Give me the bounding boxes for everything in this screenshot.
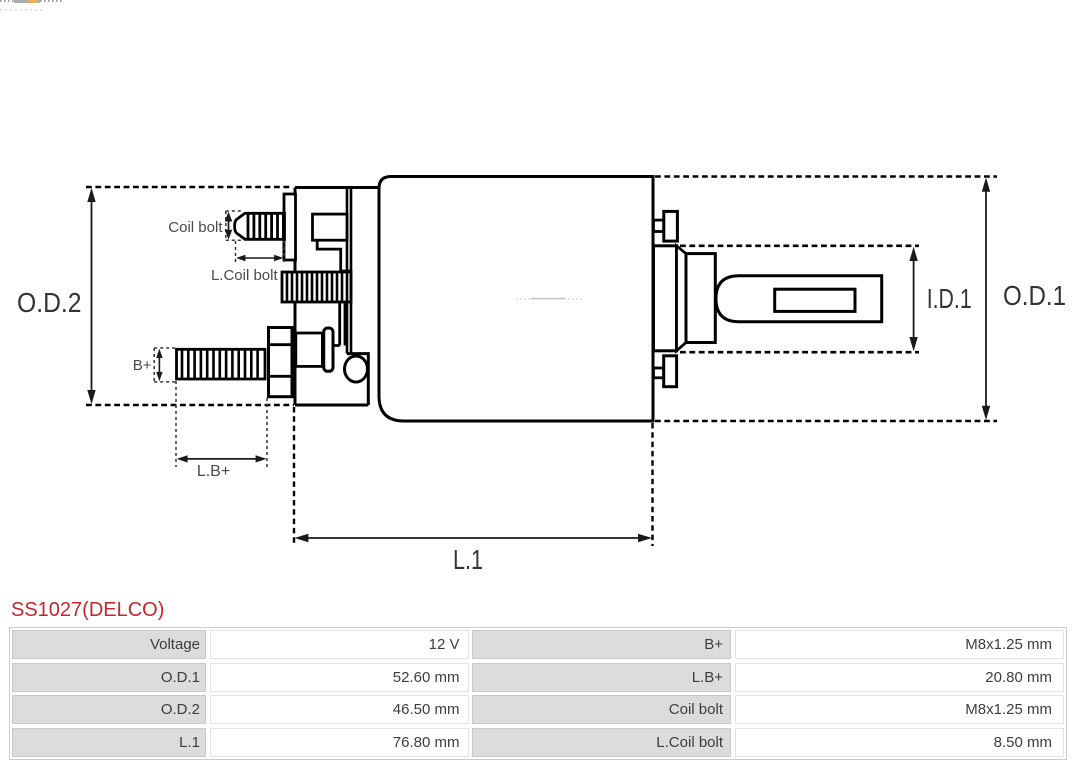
svg-text:B+: B+ (133, 357, 152, 374)
svg-text:L.1: L.1 (453, 544, 483, 575)
svg-text:L.Coil bolt: L.Coil bolt (211, 267, 279, 284)
svg-text:I.D.1: I.D.1 (927, 283, 972, 314)
svg-text:Coil bolt: Coil bolt (168, 219, 223, 236)
svg-text:O.D.2: O.D.2 (17, 287, 82, 318)
svg-text:L.B+: L.B+ (197, 463, 230, 480)
svg-text:O.D.1: O.D.1 (1003, 280, 1066, 311)
